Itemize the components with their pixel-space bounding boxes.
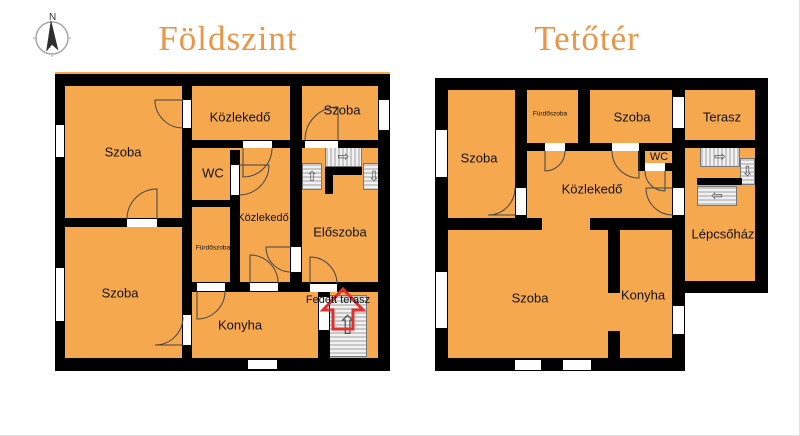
room-label-szoba: Szoba bbox=[461, 151, 498, 166]
wall bbox=[192, 200, 240, 207]
wall bbox=[55, 74, 390, 86]
window-opening bbox=[673, 97, 684, 128]
door-opening bbox=[310, 284, 337, 292]
room-label-kozlekedo: Közlekedő bbox=[210, 110, 271, 125]
window-opening bbox=[56, 268, 64, 321]
stairs-eloszoba-flight: ⇨ bbox=[325, 147, 362, 167]
wall bbox=[685, 281, 768, 293]
compass-icon: N bbox=[28, 8, 76, 64]
room-label-szoba: Szoba bbox=[324, 103, 361, 118]
door-opening bbox=[127, 219, 157, 227]
room-label-szoba: Szoba bbox=[512, 291, 549, 306]
room-label-terasz: Terasz bbox=[703, 110, 741, 125]
room-label-lepcsohaz: Lépcsőház bbox=[692, 227, 755, 242]
compass-north-label: N bbox=[49, 12, 56, 23]
door-opening bbox=[243, 141, 272, 148]
door-opening bbox=[673, 188, 684, 215]
room-label-eloszoba: Előszoba bbox=[313, 225, 366, 240]
room-label-wc: WC bbox=[650, 151, 668, 163]
wall-stair bbox=[697, 178, 742, 185]
compass-needle bbox=[47, 21, 59, 51]
wall bbox=[55, 358, 390, 371]
room-label-konyha: Konyha bbox=[218, 318, 262, 333]
wall bbox=[608, 230, 620, 293]
wall bbox=[685, 140, 755, 148]
wall bbox=[590, 218, 672, 230]
window-opening bbox=[436, 130, 447, 177]
window-opening bbox=[436, 272, 447, 328]
floorplan-canvas: N Földszint Tetőtér ⇨ ⇧ ⇩ ⇧ bbox=[0, 0, 800, 436]
room-label-konyha: Konyha bbox=[621, 288, 665, 303]
room-label-fedett-terasz: Fedett terasz bbox=[306, 294, 370, 306]
stairs-direction-arrow: ⇧ bbox=[337, 313, 359, 339]
stairs-direction-arrow: ⇩ bbox=[742, 165, 754, 179]
stairs-lepcsohaz-winder: ⇩ bbox=[740, 158, 755, 185]
room-label-kozlekedo: Közlekedő bbox=[237, 212, 288, 224]
door-opening bbox=[291, 247, 301, 272]
wall bbox=[638, 151, 645, 163]
room-label-szoba: Szoba bbox=[614, 110, 651, 125]
window-opening bbox=[248, 360, 277, 369]
window-opening bbox=[515, 360, 541, 370]
wall bbox=[608, 331, 620, 358]
stairs-eloszoba-left: ⇧ bbox=[302, 163, 322, 190]
room-label-szoba: Szoba bbox=[102, 286, 139, 301]
wall bbox=[55, 218, 192, 227]
wall-stair bbox=[325, 167, 333, 194]
floor-plan-foldszint: ⇨ ⇧ ⇩ ⇧ bbox=[55, 72, 390, 371]
door-opening bbox=[612, 143, 639, 151]
window-opening bbox=[379, 100, 389, 130]
door-opening bbox=[197, 283, 225, 291]
floor-plan-tetoter: ⇨ ⇩ ⇦ bbox=[435, 78, 768, 371]
wall bbox=[578, 90, 590, 143]
door-opening bbox=[305, 141, 338, 148]
door-opening bbox=[545, 143, 565, 151]
door-opening bbox=[250, 283, 278, 291]
room-label-furdoszoba: Fürdőszoba bbox=[533, 111, 567, 118]
room-label-furdoszoba: Fürdőszoba bbox=[196, 245, 230, 252]
floor-title-tetoter: Tetőtér bbox=[467, 20, 707, 59]
room-label-wc: WC bbox=[202, 166, 224, 181]
window-opening bbox=[563, 360, 591, 370]
door-opening bbox=[516, 188, 526, 215]
stairs-direction-arrow: ⇨ bbox=[338, 150, 350, 164]
door-opening bbox=[645, 163, 665, 171]
stairs-lepcsohaz-lower: ⇦ bbox=[697, 186, 737, 206]
wall bbox=[755, 78, 768, 293]
floor-title-foldszint: Földszint bbox=[108, 20, 348, 59]
window-opening bbox=[56, 125, 64, 157]
wall bbox=[435, 78, 768, 90]
door-opening bbox=[183, 100, 191, 128]
stairs-lepcsohaz-upper: ⇨ bbox=[700, 147, 740, 167]
stairs-direction-arrow: ⇦ bbox=[711, 189, 723, 203]
wall bbox=[435, 358, 685, 371]
wall bbox=[182, 140, 390, 148]
wall bbox=[435, 218, 542, 230]
room-label-kozlekedo: Közlekedő bbox=[562, 182, 623, 197]
room-label-szoba: Szoba bbox=[105, 145, 142, 160]
window-opening bbox=[673, 306, 684, 334]
stairs-direction-arrow: ⇧ bbox=[306, 170, 318, 184]
stairs-direction-arrow: ⇨ bbox=[714, 150, 726, 164]
door-opening bbox=[183, 315, 191, 345]
door-opening bbox=[231, 165, 239, 195]
